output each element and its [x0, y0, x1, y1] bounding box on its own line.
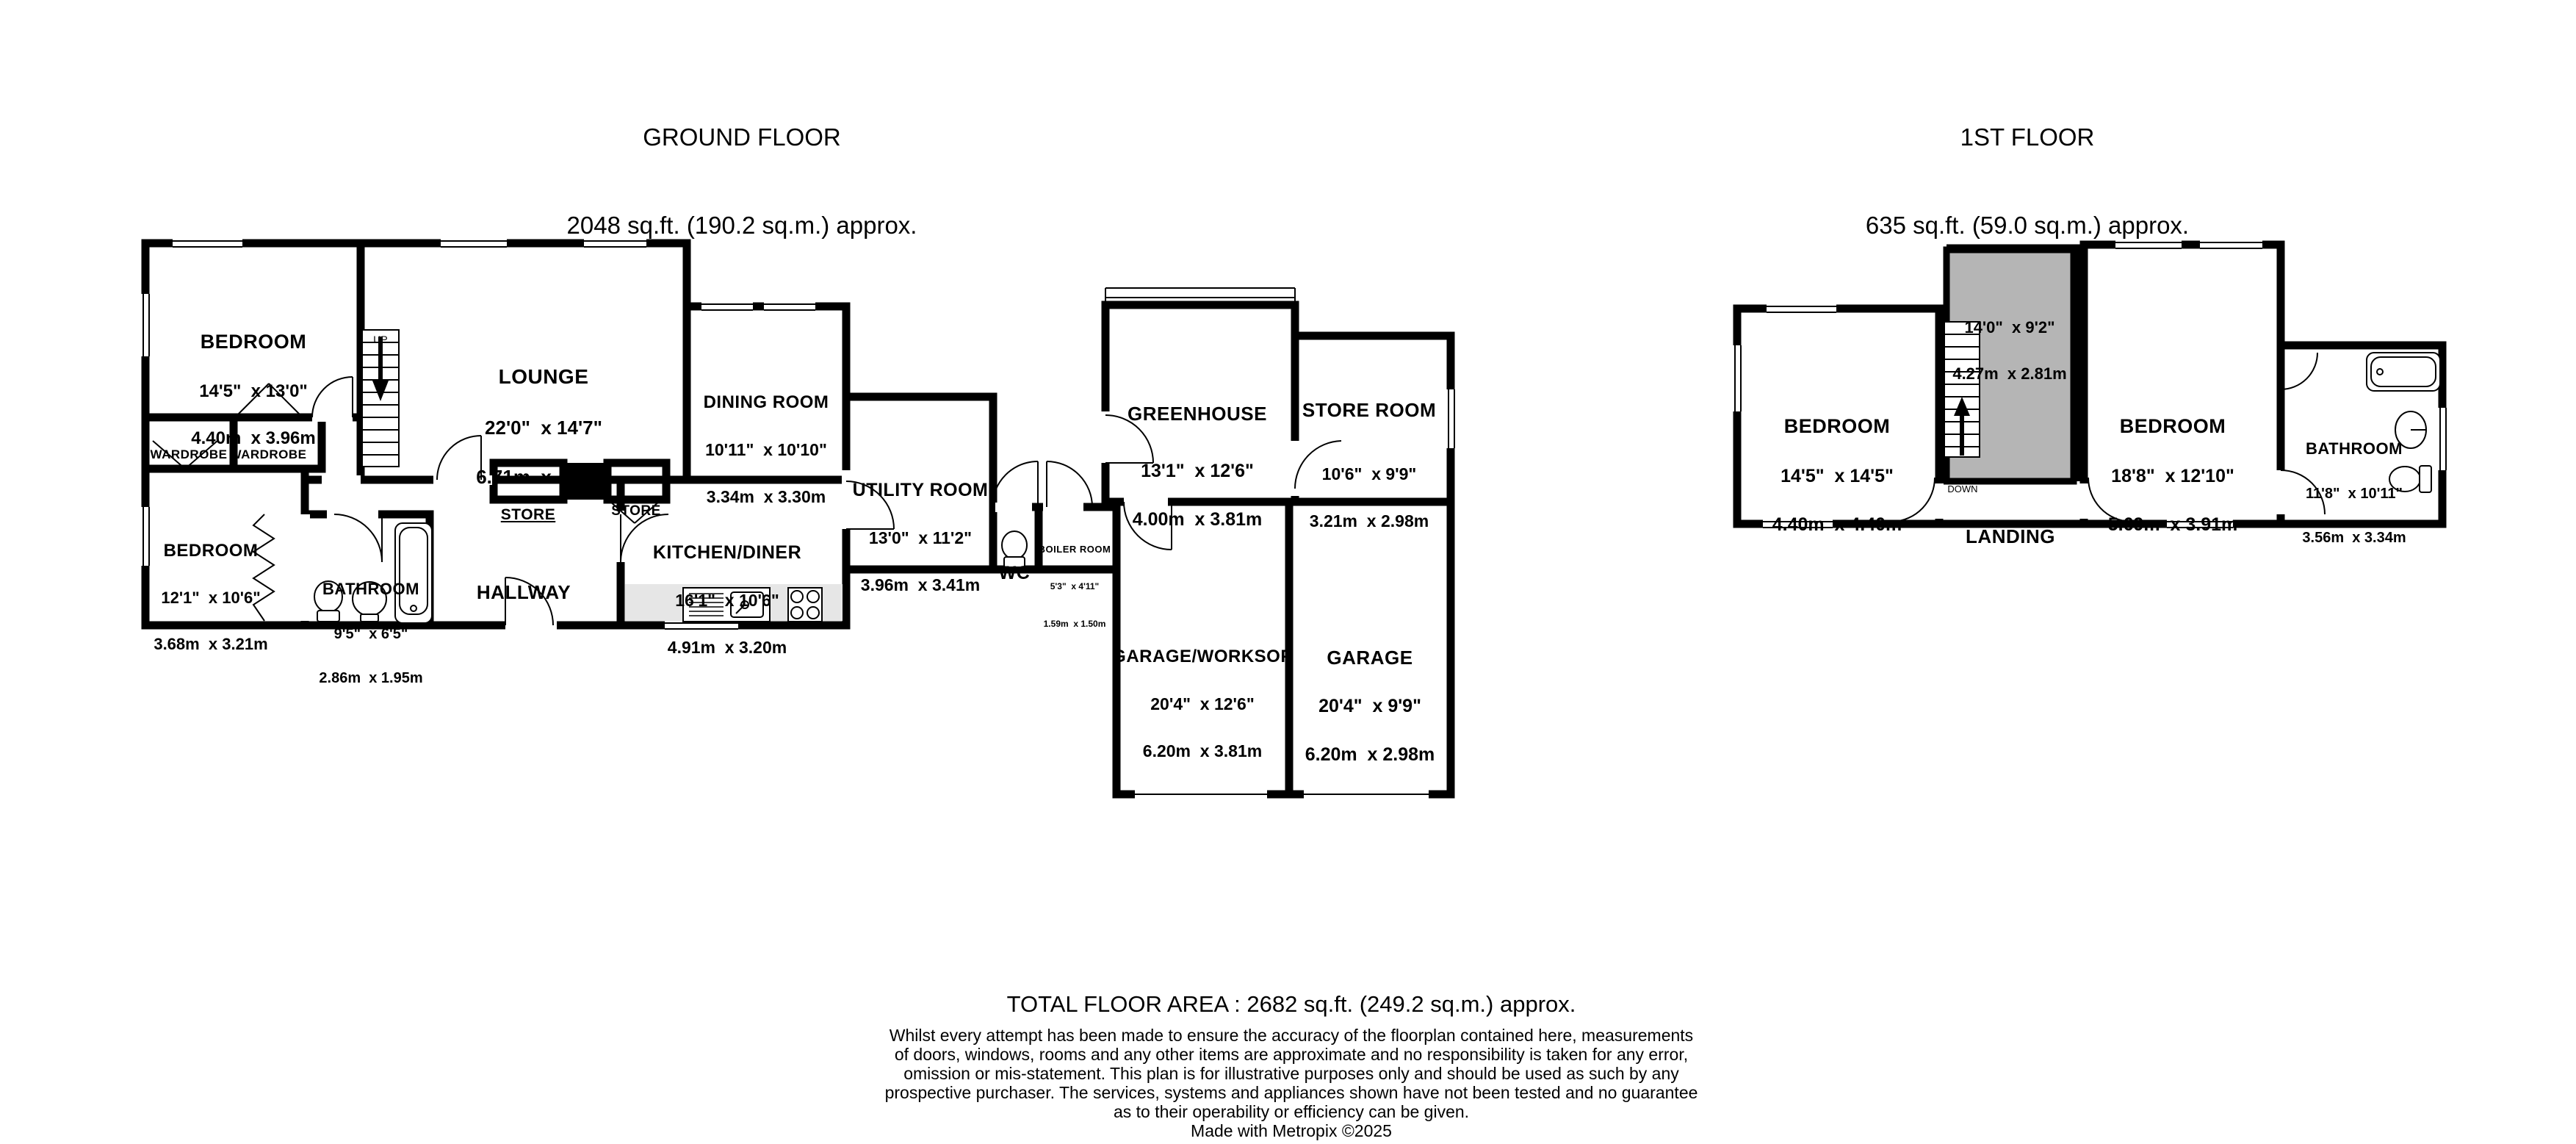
label-utility-room: UTILITY ROOM 13'0" x 11'2" 3.96m x 3.41m [853, 453, 989, 622]
room-name: LOUNGE [476, 365, 611, 389]
floor-title: 1ST FLOOR [1866, 123, 2189, 152]
room-dim-imperial: 22'0" x 14'7" [476, 417, 611, 439]
room-dim-imperial: 14'0" x 9'2" [1952, 318, 2066, 337]
label-kitchen-diner: KITCHEN/DINER 16'1" x 10'6" 4.91m x 3.20… [653, 515, 801, 685]
credit-line: Made with Metropix ©2025 [807, 1121, 1776, 1140]
room-dim-imperial: 12'1" x 10'6" [154, 589, 267, 608]
label-wc: WC [999, 520, 1031, 627]
room-dim-imperial: 13'0" x 11'2" [853, 528, 989, 548]
label-greenhouse: GREENHOUSE 13'1" x 12'6" 4.00m x 3.81m [1128, 375, 1267, 558]
room-dim-metric: 4.40m x 4.40m [1772, 514, 1902, 536]
room-name: BEDROOM [2108, 415, 2238, 438]
floor-area: 2048 sq.ft. (190.2 sq.m.) approx. [567, 211, 917, 240]
room-dim-metric: 6.20m x 2.98m [1305, 744, 1435, 766]
room-name: STORE [501, 506, 555, 524]
floorplan-canvas: GROUND FLOOR 2048 sq.ft. (190.2 sq.m.) a… [0, 0, 2576, 1144]
room-name: GARAGE [1305, 647, 1435, 669]
room-dim-metric: 2.86m x 1.95m [319, 670, 422, 687]
label-garage: GARAGE 20'4" x 9'9" 6.20m x 2.98m [1305, 619, 1435, 794]
room-name: BATHROOM [319, 580, 422, 599]
label-boiler-room: BOILER ROOM 5'3" x 4'11" 1.59m x 1.50m [1039, 517, 1111, 657]
room-dim-imperial: 14'5" x 14'5" [1772, 466, 1902, 487]
label-store-room: STORE ROOM 10'6" x 9'9" 3.21m x 2.98m [1302, 372, 1436, 558]
room-dim-imperial: 10'6" x 9'9" [1302, 464, 1436, 484]
room-dim-imperial: 5'3" x 4'11" [1039, 582, 1111, 592]
label-bedroom-rear: BEDROOM 12'1" x 10'6" 3.68m x 3.21m [154, 514, 267, 680]
room-dim-imperial: 9'5" x 6'5" [319, 626, 422, 643]
room-name: BEDROOM [154, 541, 267, 561]
label-wardrobe-right: WARDROBE [229, 419, 306, 492]
room-name: BOILER ROOM [1039, 544, 1111, 555]
label-wardrobe-left: WARDROBE [150, 419, 227, 492]
room-dim-metric: 3.56m x 3.34m [2302, 530, 2406, 547]
room-dim-metric: 3.68m x 3.21m [154, 635, 267, 654]
label-landing: LANDING [1966, 481, 2055, 592]
room-name: DINING ROOM [704, 392, 829, 413]
label-restricted-area: 14'0" x 9'2" 4.27m x 2.81m [1952, 291, 2066, 410]
room-dim-imperial: 14'5" x 13'0" [191, 381, 315, 402]
label-garage-workshop: GARAGE/WORKSOP 20'4" x 12'6" 6.20m x 3.8… [1112, 619, 1293, 788]
room-dim-imperial: 20'4" x 12'6" [1112, 694, 1293, 714]
room-name: KITCHEN/DINER [653, 542, 801, 564]
label-bedroom-1r: BEDROOM 18'8" x 12'10" 5.69m x 3.91m [2108, 388, 2238, 563]
label-bedroom-1l: BEDROOM 14'5" x 14'5" 4.40m x 4.40m [1772, 388, 1902, 563]
room-name: UTILITY ROOM [853, 480, 989, 501]
label-bathroom-ground: BATHROOM 9'5" x 6'5" 2.86m x 1.95m [319, 553, 422, 714]
room-name: WC [999, 563, 1031, 584]
room-name: STORE ROOM [1302, 399, 1436, 421]
room-name: WARDROBE [229, 447, 306, 462]
room-dim-metric: 3.34m x 3.30m [704, 487, 829, 507]
room-dim-metric: 6.20m x 3.81m [1112, 741, 1293, 761]
room-dim-metric: 3.96m x 3.41m [853, 575, 989, 595]
disclaimer-line: omission or mis-statement. This plan is … [807, 1064, 1776, 1083]
room-dim-metric: 4.27m x 2.81m [1952, 364, 2066, 384]
label-dining-room: DINING ROOM 10'11" x 10'10" 3.34m x 3.30… [704, 365, 829, 534]
room-name: GARAGE/WORKSOP [1112, 647, 1293, 667]
room-dim-metric: 4.00m x 3.81m [1128, 509, 1267, 530]
disclaimer-line: prospective purchaser. The services, sys… [807, 1083, 1776, 1102]
room-dim-metric: 1.59m x 1.50m [1039, 619, 1111, 630]
floor-area: 635 sq.ft. (59.0 sq.m.) approx. [1866, 211, 2189, 240]
room-dim-imperial: 10'11" x 10'10" [704, 440, 829, 460]
label-stairs-down: DOWN [1947, 461, 1977, 517]
room-name: GREENHOUSE [1128, 403, 1267, 425]
room-dim-imperial: 13'1" x 12'6" [1128, 461, 1267, 482]
stairs-label: DOWN [1947, 483, 1977, 494]
first-floor-title: 1ST FLOOR 635 sq.ft. (59.0 sq.m.) approx… [1866, 63, 2189, 300]
disclaimer-line: of doors, windows, rooms and any other i… [807, 1045, 1776, 1064]
label-store-left: STORE [501, 470, 555, 560]
room-dim-metric: 3.21m x 2.98m [1302, 511, 1436, 531]
room-dim-imperial: 18'8" x 12'10" [2108, 466, 2238, 487]
disclaimer-line: Whilst every attempt has been made to en… [807, 1026, 1776, 1045]
disclaimer-text: Whilst every attempt has been made to en… [807, 1026, 1776, 1140]
room-dim-metric: 4.91m x 3.20m [653, 638, 801, 658]
room-dim-metric: 5.69m x 3.91m [2108, 514, 2238, 536]
room-dim-imperial: 16'1" x 10'6" [653, 591, 801, 611]
label-bathroom-1f: BATHROOM 11'8" x 10'11" 3.56m x 3.34m [2302, 412, 2406, 574]
total-floor-area: TOTAL FLOOR AREA : 2682 sq.ft. (249.2 sq… [1007, 991, 1576, 1018]
disclaimer-line: as to their operability or efficiency ca… [807, 1102, 1776, 1121]
room-name: BEDROOM [191, 331, 315, 353]
stairs-label: UP [373, 334, 387, 345]
floor-title: GROUND FLOOR [567, 123, 917, 152]
room-name: BEDROOM [1772, 415, 1902, 438]
label-stairs-up: UP [373, 310, 387, 370]
room-dim-imperial: 20'4" x 9'9" [1305, 696, 1435, 717]
room-name: WARDROBE [150, 447, 227, 462]
room-name: HALLWAY [477, 581, 571, 603]
room-name: BATHROOM [2302, 439, 2406, 458]
room-dim-imperial: 11'8" x 10'11" [2302, 486, 2406, 503]
room-name: LANDING [1966, 525, 2055, 547]
ground-floor-title: GROUND FLOOR 2048 sq.ft. (190.2 sq.m.) a… [567, 63, 917, 300]
